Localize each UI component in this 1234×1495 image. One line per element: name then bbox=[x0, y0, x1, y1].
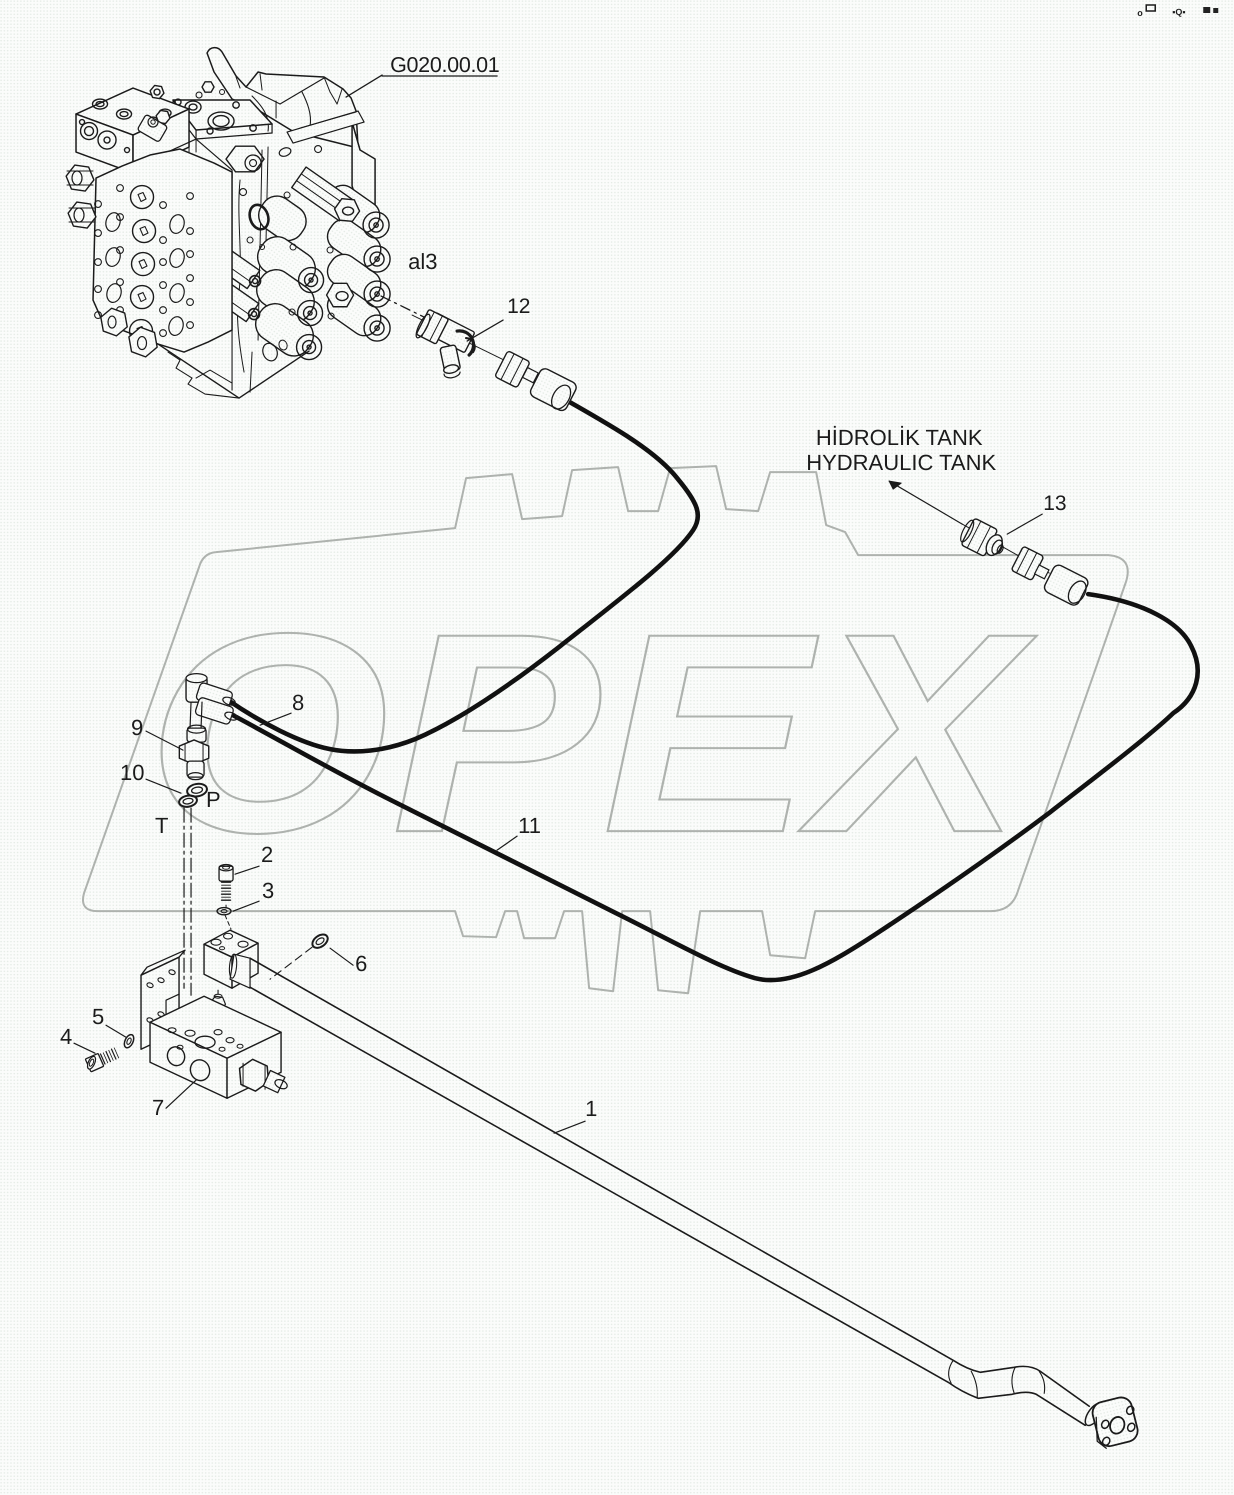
svg-text:9: 9 bbox=[131, 715, 143, 740]
svg-text:al3: al3 bbox=[408, 249, 437, 274]
svg-text:6: 6 bbox=[355, 951, 367, 976]
svg-text:HYDRAULIC TANK: HYDRAULIC TANK bbox=[806, 450, 996, 475]
svg-text:G020.00.01: G020.00.01 bbox=[390, 53, 499, 77]
svg-text:1: 1 bbox=[585, 1096, 597, 1121]
svg-text:12: 12 bbox=[507, 295, 530, 318]
svg-text:8: 8 bbox=[292, 690, 304, 715]
svg-text:7: 7 bbox=[152, 1095, 164, 1120]
svg-text:P: P bbox=[206, 787, 221, 812]
svg-text:2: 2 bbox=[261, 842, 273, 867]
svg-text:T: T bbox=[155, 813, 168, 838]
svg-text:4: 4 bbox=[60, 1024, 72, 1049]
svg-text:o: o bbox=[1137, 8, 1143, 18]
svg-text:3: 3 bbox=[262, 878, 274, 903]
svg-text:HİDROLİK TANK: HİDROLİK TANK bbox=[816, 425, 983, 450]
svg-text:10: 10 bbox=[120, 760, 144, 785]
svg-text:13: 13 bbox=[1043, 492, 1066, 515]
svg-text:▪Q▪: ▪Q▪ bbox=[1172, 7, 1185, 17]
svg-text:11: 11 bbox=[518, 813, 541, 838]
svg-text:5: 5 bbox=[92, 1004, 104, 1029]
